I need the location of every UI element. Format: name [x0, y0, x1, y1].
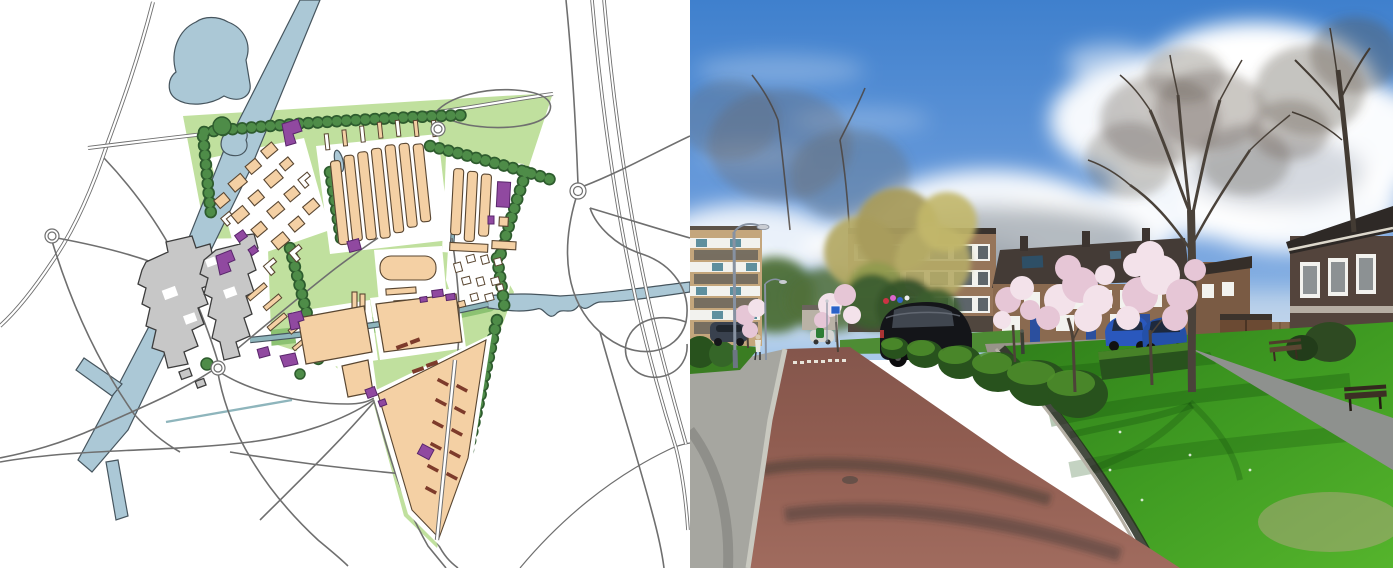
street-photo-panel — [690, 0, 1393, 568]
masterplan-map-panel — [0, 0, 690, 568]
screenshot — [0, 0, 1393, 568]
ground — [690, 322, 1393, 568]
masterplan-drawing — [0, 0, 690, 568]
street-photograph — [690, 0, 1393, 568]
manhole — [842, 476, 858, 484]
waste-bin — [816, 328, 824, 338]
